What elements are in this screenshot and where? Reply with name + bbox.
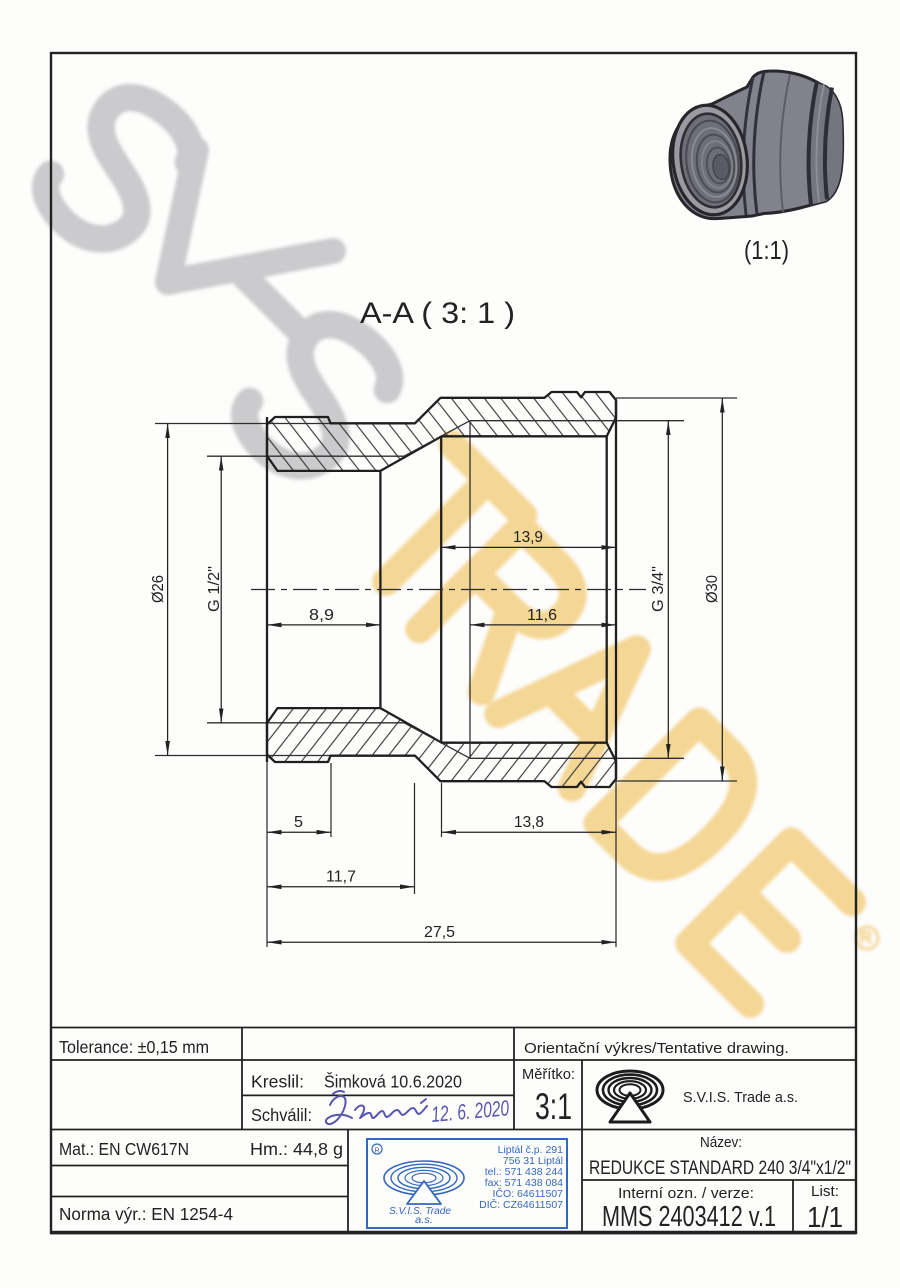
svg-text:A-A ( 3: 1 ): A-A ( 3: 1 ) [360,297,515,330]
svg-text:(1:1): (1:1) [744,235,789,265]
svg-text:12. 6. 2020: 12. 6. 2020 [430,1095,510,1127]
svg-text:27,5: 27,5 [424,924,455,941]
svg-text:MMS 2403412 v.1: MMS 2403412 v.1 [602,1201,776,1233]
svg-text:Interní ozn. / verze:: Interní ozn. / verze: [618,1185,754,1202]
svg-text:Název:: Název: [700,1134,742,1151]
svg-text:Ø26: Ø26 [150,575,167,603]
svg-text:3:1: 3:1 [535,1086,572,1127]
svg-text:5: 5 [294,814,303,831]
svg-text:Mat.: EN CW617N: Mat.: EN CW617N [59,1139,189,1159]
svg-text:S.V.I.S. Trade a.s.: S.V.I.S. Trade a.s. [683,1089,798,1106]
svg-text:List:: List: [811,1183,839,1200]
svg-text:G 3/4": G 3/4" [650,566,667,612]
svg-text:Norma výr.: EN 1254-4: Norma výr.: EN 1254-4 [59,1204,233,1224]
svg-text:Měřítko:: Měřítko: [522,1066,575,1083]
svg-text:G 1/2": G 1/2" [206,566,223,612]
svg-text:DIČ: CZ64611507: DIČ: CZ64611507 [479,1198,563,1211]
svg-text:a.s.: a.s. [415,1214,433,1226]
svg-text:R: R [375,1148,380,1155]
svg-text:Hm.: 44,8 g: Hm.: 44,8 g [250,1139,343,1159]
svg-text:8,9: 8,9 [309,607,334,624]
svg-text:13,9: 13,9 [513,529,543,546]
svg-text:Schválil:: Schválil: [251,1105,312,1125]
svg-text:Ø30: Ø30 [704,575,721,603]
svg-text:Orientační výkres/Tentative dr: Orientační výkres/Tentative drawing. [524,1040,789,1057]
svg-text:11,7: 11,7 [326,869,356,886]
svg-text:1/1: 1/1 [807,1202,843,1234]
svg-text:Kreslil:: Kreslil: [251,1072,304,1092]
svg-text:Tolerance: ±0,15 mm: Tolerance: ±0,15 mm [59,1037,209,1057]
svg-text:REDUKCE STANDARD 240 3/4"x1/2": REDUKCE STANDARD 240 3/4"x1/2" [589,1158,851,1179]
svg-text:13,8: 13,8 [514,814,544,831]
svg-text:11,6: 11,6 [527,607,557,624]
svg-text:Šimková 10.6.2020: Šimková 10.6.2020 [324,1071,462,1092]
